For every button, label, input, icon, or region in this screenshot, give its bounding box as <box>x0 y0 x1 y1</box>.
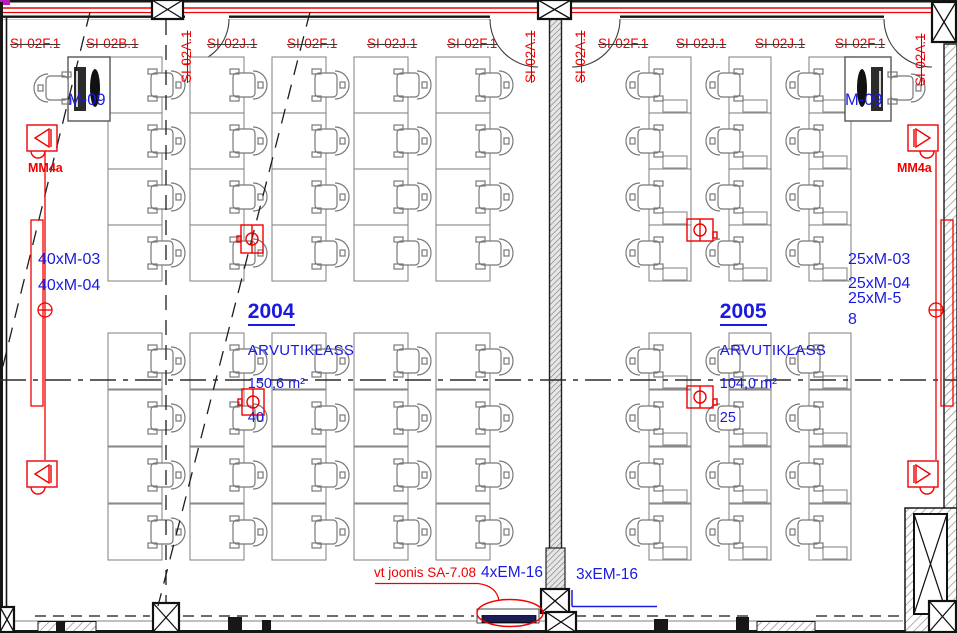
desk <box>786 447 851 503</box>
duct-label-vertical-3: SI-02A.1 <box>914 33 928 86</box>
equipment-label-right-1: 25xM-03 <box>848 252 910 269</box>
chair <box>706 516 743 548</box>
chair <box>394 181 431 213</box>
desk <box>706 57 771 113</box>
desk <box>108 113 185 169</box>
chair <box>626 516 663 548</box>
desk <box>626 504 691 560</box>
chair <box>230 516 267 548</box>
chair <box>312 459 349 491</box>
room-2004-block: 2004 ARVUTIKLASS 150,6 m² 40 <box>230 284 354 443</box>
chair <box>230 125 267 157</box>
duct-label-vertical-0: SI-02A.1 <box>180 30 194 83</box>
chair <box>626 125 663 157</box>
chair <box>312 69 349 101</box>
desk <box>190 169 267 225</box>
desk <box>626 113 691 169</box>
wall-speaker <box>27 125 57 158</box>
desk <box>108 169 185 225</box>
duct-label-3: SI-02F.1 <box>287 37 337 51</box>
desk <box>272 225 349 281</box>
room-name-2005: ARVUTIKLASS <box>720 342 826 359</box>
desk <box>272 113 349 169</box>
chair <box>476 69 513 101</box>
desk <box>706 225 771 281</box>
structural-column <box>541 589 569 613</box>
equipment-label-left-1: 40xM-03 <box>38 252 100 269</box>
desk <box>786 113 851 169</box>
chair <box>476 125 513 157</box>
chair <box>394 125 431 157</box>
structural-column <box>538 0 571 19</box>
duct-label-9: SI-02F.1 <box>835 37 885 51</box>
chair <box>476 516 513 548</box>
desk <box>786 169 851 225</box>
desk <box>354 504 431 560</box>
room-area-2005: 104,0 m² <box>720 376 777 392</box>
chair <box>786 459 823 491</box>
chair <box>394 345 431 377</box>
desk <box>108 225 185 281</box>
teacher-station-label-left: M-09 <box>68 92 106 109</box>
duct-label-8: SI-02J.1 <box>755 37 805 51</box>
duct-label-vertical-1: SI-02A.1 <box>524 30 538 83</box>
equipment-label-left-2: 40xM-04 <box>38 278 100 295</box>
desk <box>786 225 851 281</box>
chair <box>312 237 349 269</box>
chair <box>786 237 823 269</box>
duct-label-4: SI-02J.1 <box>367 37 417 51</box>
chair <box>476 345 513 377</box>
desk <box>354 57 431 113</box>
desk <box>706 504 771 560</box>
duct-label-0: SI-02F.1 <box>10 37 60 51</box>
chair <box>476 459 513 491</box>
em16-label-left: 4xEM-16 <box>481 565 543 581</box>
duct-label-6: SI-02F.1 <box>598 37 648 51</box>
em16-label-right: 3xEM-16 <box>576 567 638 583</box>
desk <box>626 169 691 225</box>
desk <box>626 390 691 446</box>
wall-speaker <box>908 125 938 158</box>
room-number-2005: 2005 <box>720 301 767 326</box>
chair <box>312 181 349 213</box>
structural-column <box>546 612 576 632</box>
chair <box>706 69 743 101</box>
chair <box>626 181 663 213</box>
structural-column <box>152 0 183 19</box>
chair <box>626 459 663 491</box>
desk <box>272 504 349 560</box>
chair <box>476 181 513 213</box>
desk <box>706 113 771 169</box>
duct-label-5: SI-02F.1 <box>447 37 497 51</box>
desk <box>108 447 185 503</box>
desk <box>786 57 851 113</box>
desk <box>108 57 185 113</box>
chair <box>230 459 267 491</box>
desk <box>190 504 267 560</box>
desk <box>354 113 431 169</box>
chair <box>394 516 431 548</box>
chair <box>394 402 431 434</box>
teacher-station <box>34 57 110 121</box>
chair <box>706 125 743 157</box>
floor-plan: SI-02F.1SI-02B.1SI-02J.1SI-02F.1SI-02J.1… <box>0 0 957 633</box>
chair <box>626 237 663 269</box>
desk <box>626 57 691 113</box>
room-area-2004: 150,6 m² <box>248 376 305 392</box>
chair <box>230 69 267 101</box>
room-seats-2005: 25 <box>720 410 736 426</box>
desk <box>626 225 691 281</box>
structural-column <box>929 601 956 632</box>
desk <box>436 447 513 503</box>
structural-column <box>0 607 14 632</box>
teacher-station-label-right: M-09 <box>845 92 883 109</box>
desk <box>272 447 349 503</box>
desk <box>354 225 431 281</box>
chair <box>786 516 823 548</box>
chair <box>34 72 71 104</box>
desk <box>436 113 513 169</box>
chair <box>786 69 823 101</box>
desk <box>786 504 851 560</box>
desk <box>190 57 267 113</box>
chair <box>312 516 349 548</box>
desk <box>272 57 349 113</box>
equipment-label-right-3: 25xM-5 <box>848 291 901 308</box>
chair <box>230 181 267 213</box>
desk <box>436 57 513 113</box>
structural-column <box>932 2 956 42</box>
chair <box>312 125 349 157</box>
chair <box>394 69 431 101</box>
equipment-label-right-4: 8 <box>848 312 857 329</box>
chair <box>394 237 431 269</box>
desk <box>108 504 185 560</box>
room-2005-block: 2005 ARVUTIKLASS 104,0 m² 25 <box>702 284 826 443</box>
mm4a-label-left: MM4a <box>28 162 63 175</box>
chair <box>476 237 513 269</box>
duct-label-vertical-2: SI-02A.1 <box>574 30 588 83</box>
chair <box>626 69 663 101</box>
chair <box>476 402 513 434</box>
duct-label-2: SI-02J.1 <box>207 37 257 51</box>
reference-note-label: vt joonis SA-7.08 <box>374 566 476 580</box>
room-seats-2004: 40 <box>248 410 264 426</box>
desk <box>436 504 513 560</box>
desk <box>190 113 267 169</box>
wall-speaker <box>27 461 57 494</box>
chair <box>786 181 823 213</box>
desk <box>706 447 771 503</box>
desk <box>108 390 185 446</box>
chair <box>706 181 743 213</box>
desk <box>272 169 349 225</box>
desk <box>436 225 513 281</box>
room-name-2004: ARVUTIKLASS <box>248 342 354 359</box>
chair <box>706 237 743 269</box>
chair <box>706 459 743 491</box>
desk <box>436 390 513 446</box>
desk <box>706 169 771 225</box>
desk <box>354 390 431 446</box>
chair <box>626 345 663 377</box>
desk <box>626 447 691 503</box>
chair <box>394 459 431 491</box>
wall-speaker <box>908 461 938 494</box>
desk <box>354 447 431 503</box>
duct-label-7: SI-02J.1 <box>676 37 726 51</box>
chair <box>626 402 663 434</box>
wall-conduit <box>31 152 52 460</box>
desk <box>190 447 267 503</box>
desk <box>354 169 431 225</box>
desk <box>436 169 513 225</box>
chair <box>786 125 823 157</box>
structural-column <box>153 603 179 632</box>
room-number-2004: 2004 <box>248 301 295 326</box>
duct-label-1: SI-02B.1 <box>86 37 139 51</box>
mm4a-label-right: MM4a <box>897 162 932 175</box>
